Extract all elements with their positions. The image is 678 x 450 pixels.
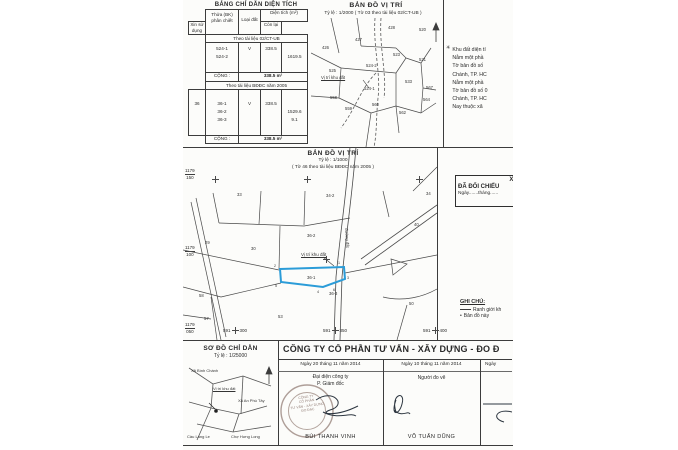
parcel-label: 559 bbox=[345, 106, 352, 111]
table-ghost-cell bbox=[189, 135, 206, 143]
table-ghost-cell bbox=[189, 81, 206, 89]
table-ghost-cell bbox=[189, 10, 206, 22]
section1-band: Theo tài liệu 02/CT-UB bbox=[206, 34, 308, 42]
scanned-survey-page: BẢNG CHỈ DẪN DIỆN TÍCH Thửa (BK) phân ch… bbox=[0, 0, 678, 450]
vertex-label: 5 bbox=[275, 284, 277, 288]
parcel-label: 53 bbox=[278, 314, 283, 319]
parcel-label: 567 bbox=[426, 85, 433, 90]
area-table-title: BẢNG CHỈ DẪN DIỆN TÍCH bbox=[205, 2, 307, 9]
signer-name: BÙI THANH VINH bbox=[278, 434, 383, 440]
table-ghost-cell bbox=[189, 42, 206, 72]
boundary-line-icon bbox=[460, 309, 471, 310]
header-remaining: Còn lại bbox=[261, 22, 282, 35]
area-table: Thửa (BK) phân chiết Loại đất Diện tích … bbox=[188, 9, 308, 144]
parcel-label: 521 bbox=[419, 57, 426, 62]
table-ghost-cell bbox=[189, 34, 206, 42]
director-signature bbox=[316, 396, 358, 414]
note-line: Chánh, TP. HC bbox=[452, 95, 487, 103]
sketch-roads bbox=[189, 368, 271, 440]
surveyor-signature bbox=[394, 396, 403, 413]
parcel-label: 29 bbox=[205, 240, 210, 245]
land-type-value: V bbox=[239, 42, 261, 72]
cert-line: Ngày.......tháng...... bbox=[458, 191, 513, 197]
certification-box: XÁC N ĐÃ ĐỐI CHIẾU Ngày.......tháng.....… bbox=[455, 175, 513, 207]
sheet-number: 36 bbox=[189, 89, 206, 135]
note-line: Nằm một phầ bbox=[452, 54, 487, 62]
vertex-label: 6 bbox=[333, 288, 335, 292]
sketch-label: Vị trí khu đất bbox=[213, 386, 235, 391]
parcel-label: 524-2 bbox=[366, 63, 377, 68]
requested-value: 338.5 bbox=[261, 42, 282, 72]
parcel-label: 520 bbox=[419, 27, 426, 32]
map1000-linework bbox=[183, 147, 437, 340]
note-line: Khu đất diện tí bbox=[452, 46, 487, 54]
north-arrow-icon bbox=[433, 23, 439, 42]
legend-title: GHI CHÚ: bbox=[460, 299, 501, 305]
parcel-label: 562 bbox=[399, 110, 406, 115]
section2-band: Theo tài liệu BĐĐC năm 2005 bbox=[206, 81, 308, 89]
land-type-value: V bbox=[239, 89, 261, 135]
map2000-subtitle: Tỷ lệ : 1/2000 ( Tờ 03 theo tài liệu 02/… bbox=[303, 11, 443, 17]
vertex-label: 2 bbox=[274, 264, 276, 268]
divider-horizontal-bottom bbox=[183, 445, 513, 446]
header-land-type: Loại đất bbox=[239, 10, 261, 35]
parcel-label: 427 bbox=[355, 37, 362, 42]
requested-value: 338.5 bbox=[261, 89, 282, 135]
header-requested: Xin sử dụng bbox=[189, 22, 206, 35]
note-line: Nằm một phầ bbox=[452, 79, 487, 87]
sketch-label: Xã Bình Chánh bbox=[191, 368, 218, 373]
parcel-boundaries bbox=[311, 18, 436, 147]
location-annotation: Vị trí khu đất bbox=[321, 75, 345, 80]
surveyor-signature bbox=[394, 410, 410, 414]
parcel-label: 558 bbox=[330, 95, 337, 100]
sketch-scale: Tỷ lệ : 1/25000 bbox=[183, 354, 278, 360]
parcel-label: 564 bbox=[423, 97, 430, 102]
partial-signature bbox=[497, 411, 512, 422]
cert-line: ĐÃ ĐỐI CHIẾU bbox=[458, 184, 513, 191]
legend: GHI CHÚ: Ranh giới kh Bản đồ này bbox=[460, 299, 501, 320]
parcel-label: 40 bbox=[414, 222, 419, 227]
north-arrow-icon bbox=[266, 367, 272, 384]
parcel-label: 34 bbox=[426, 191, 431, 196]
vertex-label: 1 bbox=[338, 261, 340, 265]
total-value: 338.5 m² bbox=[239, 72, 308, 81]
parcel-label: 36-2 bbox=[307, 233, 315, 238]
location-dot bbox=[214, 409, 218, 413]
note-line: Tờ bản đồ số 0 bbox=[452, 87, 487, 95]
parcel-label: 525 bbox=[329, 68, 336, 73]
asterisk-icon: ✳ bbox=[446, 46, 450, 112]
remaining-value: 1619.5 bbox=[282, 42, 308, 72]
total-label: CỘNG : bbox=[206, 72, 239, 81]
map2000-title: BẢN ĐỒ VỊ TRÍ bbox=[311, 2, 441, 10]
location-annotation: Vị trí khu đất bbox=[301, 252, 326, 257]
parcel-label: 33 bbox=[237, 192, 242, 197]
remaining-value: 1529.6 9.1 bbox=[282, 89, 308, 135]
signatures-layer bbox=[278, 360, 512, 444]
sketch-label: Chợ Hưng Long bbox=[231, 434, 260, 439]
parcel-label: 50 bbox=[409, 301, 414, 306]
cert-line: XÁC N bbox=[458, 177, 513, 184]
table-ghost-cell bbox=[189, 72, 206, 81]
dashed-road bbox=[341, 18, 385, 147]
plot-ids: 36-1 36-2 36-3 bbox=[206, 89, 239, 135]
parcel-label: 524-1 bbox=[364, 86, 375, 91]
parcel-label: 34-2 bbox=[326, 193, 334, 198]
note-line: Nay thuộc xã bbox=[452, 103, 487, 111]
parcel-label: 58 bbox=[199, 293, 204, 298]
sketch-label: Cầu Láng Le bbox=[187, 434, 210, 439]
side-note: ✳ Khu đất diện tí Nằm một phầ Tờ bản đồ … bbox=[446, 46, 512, 112]
parcel-label: 426 bbox=[322, 45, 329, 50]
sketch-label: Xã An Phú Tây bbox=[238, 398, 265, 403]
vertex-label: 3 bbox=[347, 276, 349, 280]
total-label: CỘNG : bbox=[206, 135, 239, 143]
map1000-right-border bbox=[437, 147, 438, 340]
company-title: CÔNG TY CỔ PHẦN TƯ VẤN - XÂY DỰNG - ĐO Đ bbox=[283, 344, 512, 354]
parcel-label: 533 bbox=[405, 79, 412, 84]
header-plot: Thửa (BK) phân chiết bbox=[206, 10, 239, 35]
parcel-label: 30 bbox=[251, 246, 256, 251]
divider-horizontal-2 bbox=[183, 340, 513, 341]
note-line: Chánh, TP. HC bbox=[452, 71, 487, 79]
parcel-label: 57 bbox=[204, 316, 209, 321]
note-line: Tờ bản đồ số bbox=[452, 62, 487, 70]
plot-ids: 524-1 524-2 bbox=[206, 42, 239, 72]
parcel-label: 36-1 bbox=[307, 275, 315, 280]
sketch-linework bbox=[185, 362, 275, 444]
leader-line bbox=[323, 257, 334, 266]
map2000-linework bbox=[311, 18, 443, 147]
scan-area: BẢNG CHỈ DẪN DIỆN TÍCH Thửa (BK) phân ch… bbox=[183, 0, 513, 450]
signer-name: VÕ TUẤN DŨNG bbox=[383, 434, 480, 440]
header-area: Diện tích (m²) bbox=[261, 10, 308, 22]
divider-vertical-top bbox=[443, 0, 444, 147]
vertex-label: 4 bbox=[317, 290, 319, 294]
sketch-title: SƠ ĐỒ CHỈ DẪN bbox=[183, 345, 278, 352]
parcel-label: 560 bbox=[372, 102, 379, 107]
total-value: 338.5 m² bbox=[239, 135, 308, 143]
parcel-label: 523 bbox=[393, 52, 400, 57]
parcel-label: 428 bbox=[388, 25, 395, 30]
legend-item: Bản đồ này bbox=[460, 314, 501, 320]
